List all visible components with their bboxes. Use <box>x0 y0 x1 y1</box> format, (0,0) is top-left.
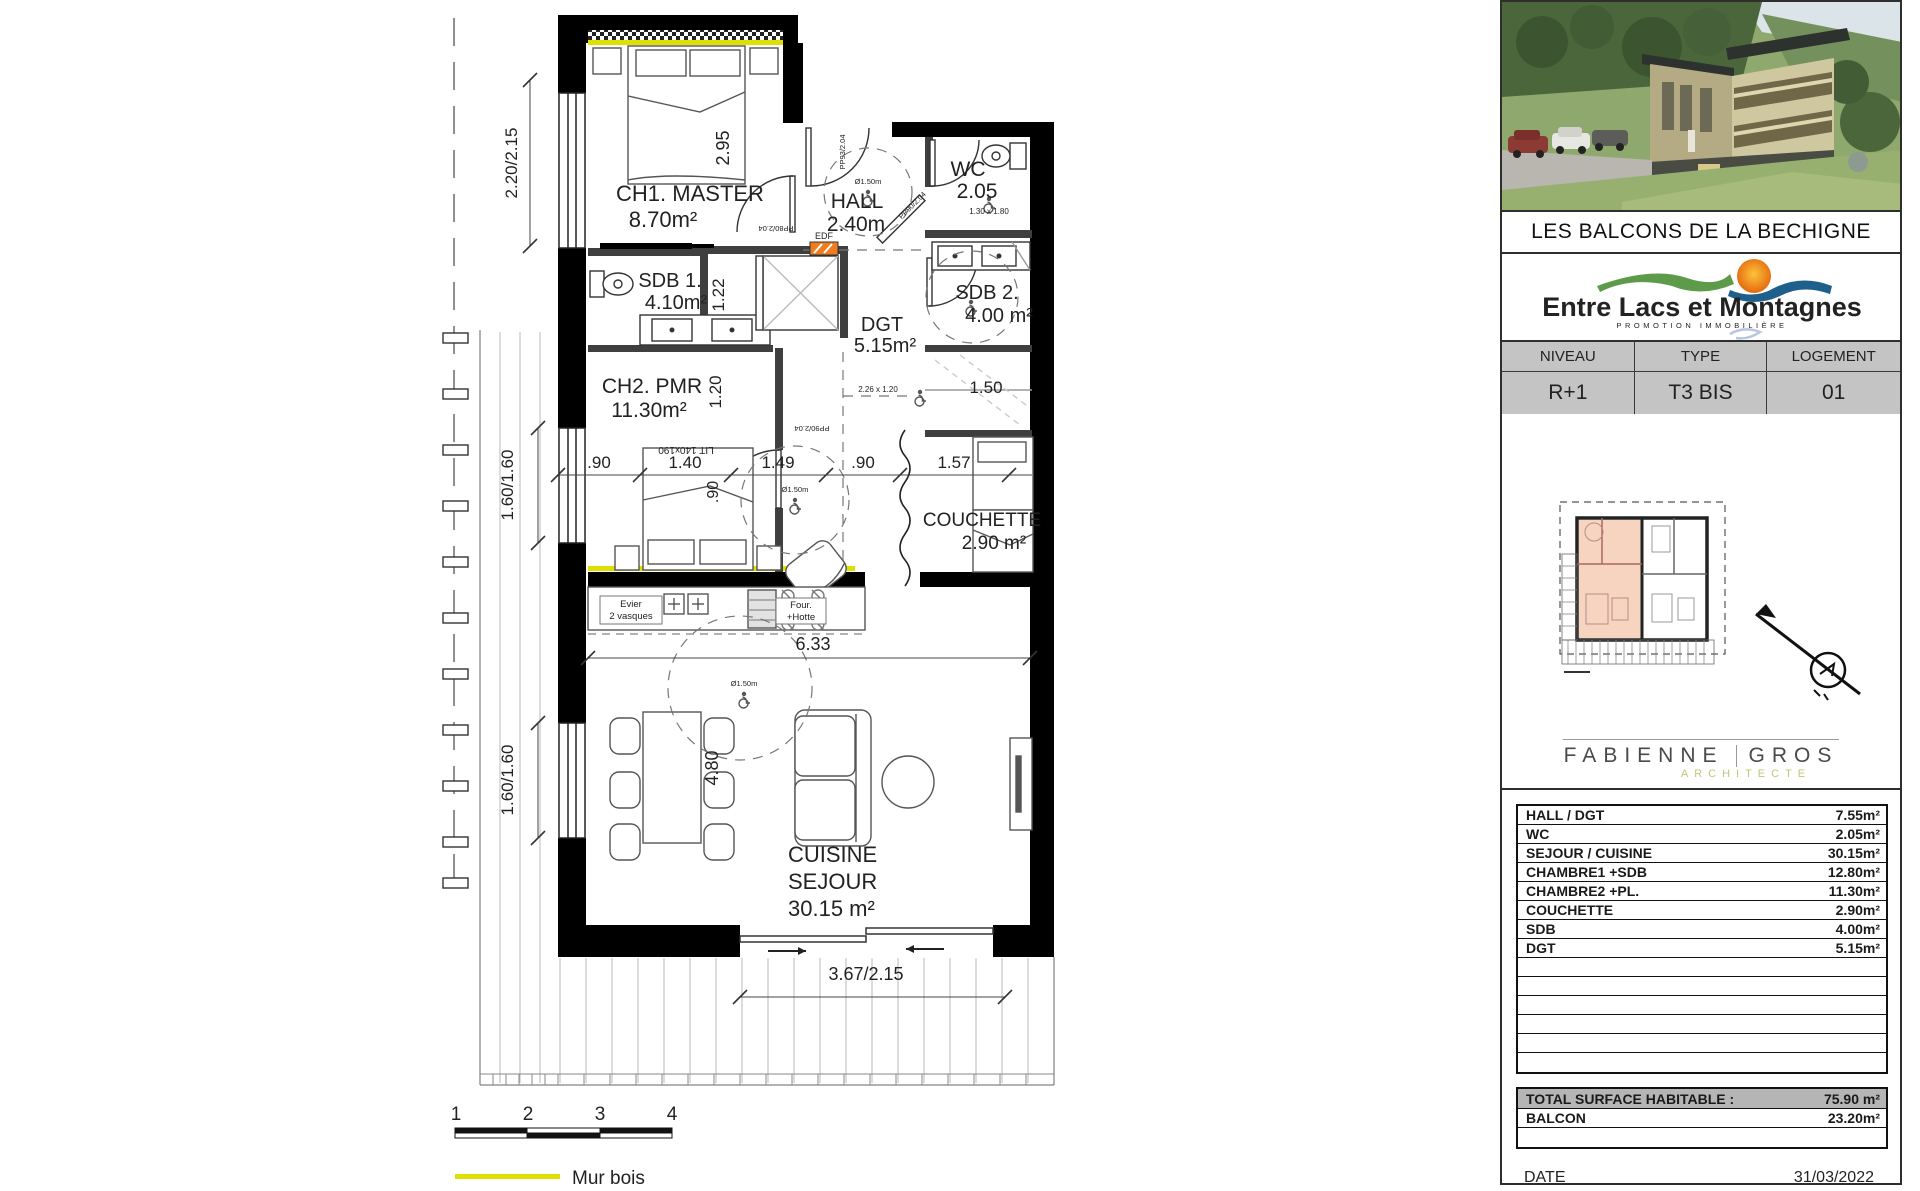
logo-sun-icon <box>1737 259 1771 293</box>
scale-bar: 1 2 3 4 <box>451 1104 678 1138</box>
mur-bois-label: Mur bois <box>572 1168 645 1189</box>
row-label: SEJOUR / CUISINE <box>1526 845 1652 861</box>
dim-480: 4.80 <box>702 750 722 785</box>
table-row-empty <box>1518 1053 1886 1072</box>
dim-160b: 1.60/1.60 <box>498 745 517 816</box>
logo-tagline: PROMOTION IMMOBILIÈRE <box>1616 321 1787 330</box>
table-row-empty <box>1518 996 1886 1015</box>
row-value: 12.80m² <box>1828 864 1880 880</box>
row-value: 2.05m² <box>1836 826 1880 842</box>
meta-table: NIVEAU TYPE LOGEMENT R+1 T3 BIS 01 <box>1502 342 1900 414</box>
dim-122: 1.22 <box>709 278 728 311</box>
row-label: DGT <box>1526 940 1556 956</box>
room-cuisine-line2: SEJOUR <box>788 869 877 894</box>
dim-chain-149: 1.49 <box>761 453 794 472</box>
row-label: SDB <box>1526 921 1556 937</box>
dim-367-215: 3.67/2.15 <box>828 964 903 984</box>
room-wc-name: WC <box>951 158 986 181</box>
room-couchette-name: COUCHETTE <box>923 510 1041 531</box>
row-label: WC <box>1526 826 1549 842</box>
table-row: CHAMBRE1 +SDB 12.80m² <box>1518 863 1886 882</box>
building-render <box>1502 2 1900 212</box>
room-hall-area: 2.40m <box>827 213 885 236</box>
dim-295: 2.95 <box>713 130 733 165</box>
building-render-art <box>1502 2 1900 212</box>
key-plan-unit-highlight <box>1579 520 1641 638</box>
row-label: HALL / DGT <box>1526 807 1604 823</box>
balcony-posts <box>443 18 468 895</box>
architect-signature: FABIENNE GROS ARCHITECTE <box>1502 739 1900 780</box>
date-value: 31/03/2022 <box>1794 1169 1874 1187</box>
dim-chain-090a: .90 <box>587 453 611 472</box>
project-title-box: LES BALCONS DE LA BECHIGNE <box>1502 212 1900 254</box>
totals-row-empty <box>1518 1128 1886 1147</box>
logo-mountain-icon <box>1597 274 1734 293</box>
table-row: COUCHETTE 2.90m² <box>1518 901 1886 920</box>
edf-label: EDF <box>815 231 834 241</box>
edf-box <box>810 242 838 255</box>
row-value: 11.30m² <box>1829 883 1880 899</box>
dgt-dim-label: 2.26 x 1.20 <box>858 385 898 394</box>
row-value: 2.90m² <box>1836 902 1880 918</box>
balcon-value: 23.20m² <box>1828 1110 1880 1126</box>
lit-label: LIT 140x190 <box>658 444 714 455</box>
row-value: 7.55m² <box>1836 807 1880 823</box>
room-sdb2-area: 4.00 m² <box>965 305 1033 327</box>
north-arrow-icon <box>1756 604 1860 700</box>
dia-label-hall: Ø1.50m <box>855 177 882 186</box>
architect-rule <box>1563 739 1839 740</box>
key-plan <box>1502 414 1902 714</box>
dim-090v: .90 <box>705 481 722 503</box>
dim-chain-090b: .90 <box>851 453 875 472</box>
title-block-panel: LES BALCONS DE LA BECHIGNE Entre Lacs et… <box>1500 0 1902 1185</box>
row-value: 4.00m² <box>1836 921 1880 937</box>
room-cuisine-line1: CUISINE <box>788 842 877 867</box>
sliding-door <box>740 928 993 955</box>
four-label-2: +Hotte <box>787 612 815 623</box>
dia-label-ch2: Ø1.50m <box>782 485 809 494</box>
key-plan-box: FABIENNE GROS ARCHITECTE <box>1502 414 1900 790</box>
table-row: SEJOUR / CUISINE 30.15m² <box>1518 844 1886 863</box>
meta-value-type: T3 BIS <box>1635 372 1768 414</box>
mur-bois-swatch <box>455 1174 560 1179</box>
room-wc-area: 2.05 <box>957 180 998 203</box>
architect-role: ARCHITECTE <box>1502 768 1900 780</box>
table-row: HALL / DGT 7.55m² <box>1518 806 1886 825</box>
row-label: CHAMBRE2 +PL. <box>1526 883 1639 899</box>
room-dgt-name: DGT <box>861 314 903 336</box>
row-value: 5.15m² <box>1836 940 1880 956</box>
totals-table: TOTAL SURFACE HABITABLE : 75.90 m² BALCO… <box>1516 1087 1888 1149</box>
table-row: WC 2.05m² <box>1518 825 1886 844</box>
four-label-1: Four. <box>790 600 812 611</box>
table-row: DGT 5.15m² <box>1518 939 1886 958</box>
table-row-empty <box>1518 977 1886 996</box>
room-ch1-area: 8.70m² <box>629 207 697 232</box>
legend-mur-bois: Mur bois <box>455 1168 645 1189</box>
areas-table: HALL / DGT 7.55m² WC 2.05m² SEJOUR / CUI… <box>1516 804 1888 1074</box>
architect-divider <box>1736 745 1737 767</box>
door-label-pp90b: PP90/2.04 <box>794 424 829 433</box>
scale-1: 1 <box>451 1104 462 1125</box>
row-value: 30.15m² <box>1828 845 1880 861</box>
room-ch1-name: CH1. MASTER <box>616 181 764 206</box>
evier-label-1: Evier <box>620 599 642 610</box>
dim-220-215: 2.20/2.15 <box>502 128 521 199</box>
room-sdb1-area: 4.10m² <box>645 292 708 314</box>
row-label: COUCHETTE <box>1526 902 1613 918</box>
meta-value-niveau: R+1 <box>1502 372 1635 414</box>
balcon-label: BALCON <box>1526 1110 1586 1126</box>
evier-label-2: 2 vasques <box>609 611 653 622</box>
room-cuisine-area: 30.15 m² <box>788 896 875 921</box>
dim-160a: 1.60/1.60 <box>498 450 517 521</box>
room-sdb1-name: SDB 1. <box>638 270 701 292</box>
date-label: DATE <box>1524 1169 1565 1187</box>
table-row-empty <box>1518 958 1886 977</box>
developer-logo: Entre Lacs et Montagnes PROMOTION IMMOBI… <box>1502 254 1900 342</box>
dim-150: 1.50 <box>969 378 1002 397</box>
door-label-pp93: PP93/2.04 <box>838 134 847 169</box>
scale-2: 2 <box>523 1104 534 1125</box>
room-ch2-name: CH2. PMR <box>602 375 702 398</box>
windows <box>559 93 585 838</box>
logo-name: Entre Lacs et Montagnes <box>1542 292 1862 322</box>
row-label: CHAMBRE1 +SDB <box>1526 864 1647 880</box>
dim-633: 6.33 <box>795 634 830 654</box>
total-surface-label: TOTAL SURFACE HABITABLE : <box>1526 1091 1734 1107</box>
room-hall-name: HALL <box>831 190 884 213</box>
room-sdb2-name: SDB 2. <box>955 282 1018 304</box>
balcon-row: BALCON 23.20m² <box>1518 1109 1886 1128</box>
dim-chain-157: 1.57 <box>937 453 970 472</box>
architect-first-name: FABIENNE <box>1564 744 1724 768</box>
wc-dim-label: 1.30 x 1.80 <box>969 207 1009 216</box>
meta-value-logement: 01 <box>1767 372 1900 414</box>
dim-120: 1.20 <box>706 375 725 408</box>
meta-header-niveau: NIVEAU <box>1502 342 1635 372</box>
room-ch2-area: 11.30m² <box>611 399 686 422</box>
room-couchette-area: 2.90 m² <box>962 533 1026 554</box>
scale-3: 3 <box>595 1104 606 1125</box>
room-dgt-area: 5.15m² <box>854 335 917 357</box>
total-surface-value: 75.90 m² <box>1824 1091 1880 1107</box>
logo-squiggle <box>1730 329 1760 338</box>
table-row-empty <box>1518 1034 1886 1053</box>
meta-header-logement: LOGEMENT <box>1767 342 1900 372</box>
door-label-pp80: PP80/2.04 <box>758 224 793 233</box>
architect-last-name: GROS <box>1749 744 1839 768</box>
dia-label-sejour: Ø1.50m <box>731 679 758 688</box>
table-row: CHAMBRE2 +PL. 11.30m² <box>1518 882 1886 901</box>
scale-4: 4 <box>667 1104 678 1125</box>
meta-header-type: TYPE <box>1635 342 1768 372</box>
floor-plan: CH1. MASTER 8.70m² HALL 2.40m WC 2.05 SD… <box>0 0 1500 1191</box>
table-row-empty <box>1518 1015 1886 1034</box>
project-title: LES BALCONS DE LA BECHIGNE <box>1531 220 1871 244</box>
date-row: DATE 31/03/2022 <box>1502 1157 1900 1187</box>
table-row: SDB 4.00m² <box>1518 920 1886 939</box>
total-surface-row: TOTAL SURFACE HABITABLE : 75.90 m² <box>1518 1089 1886 1109</box>
